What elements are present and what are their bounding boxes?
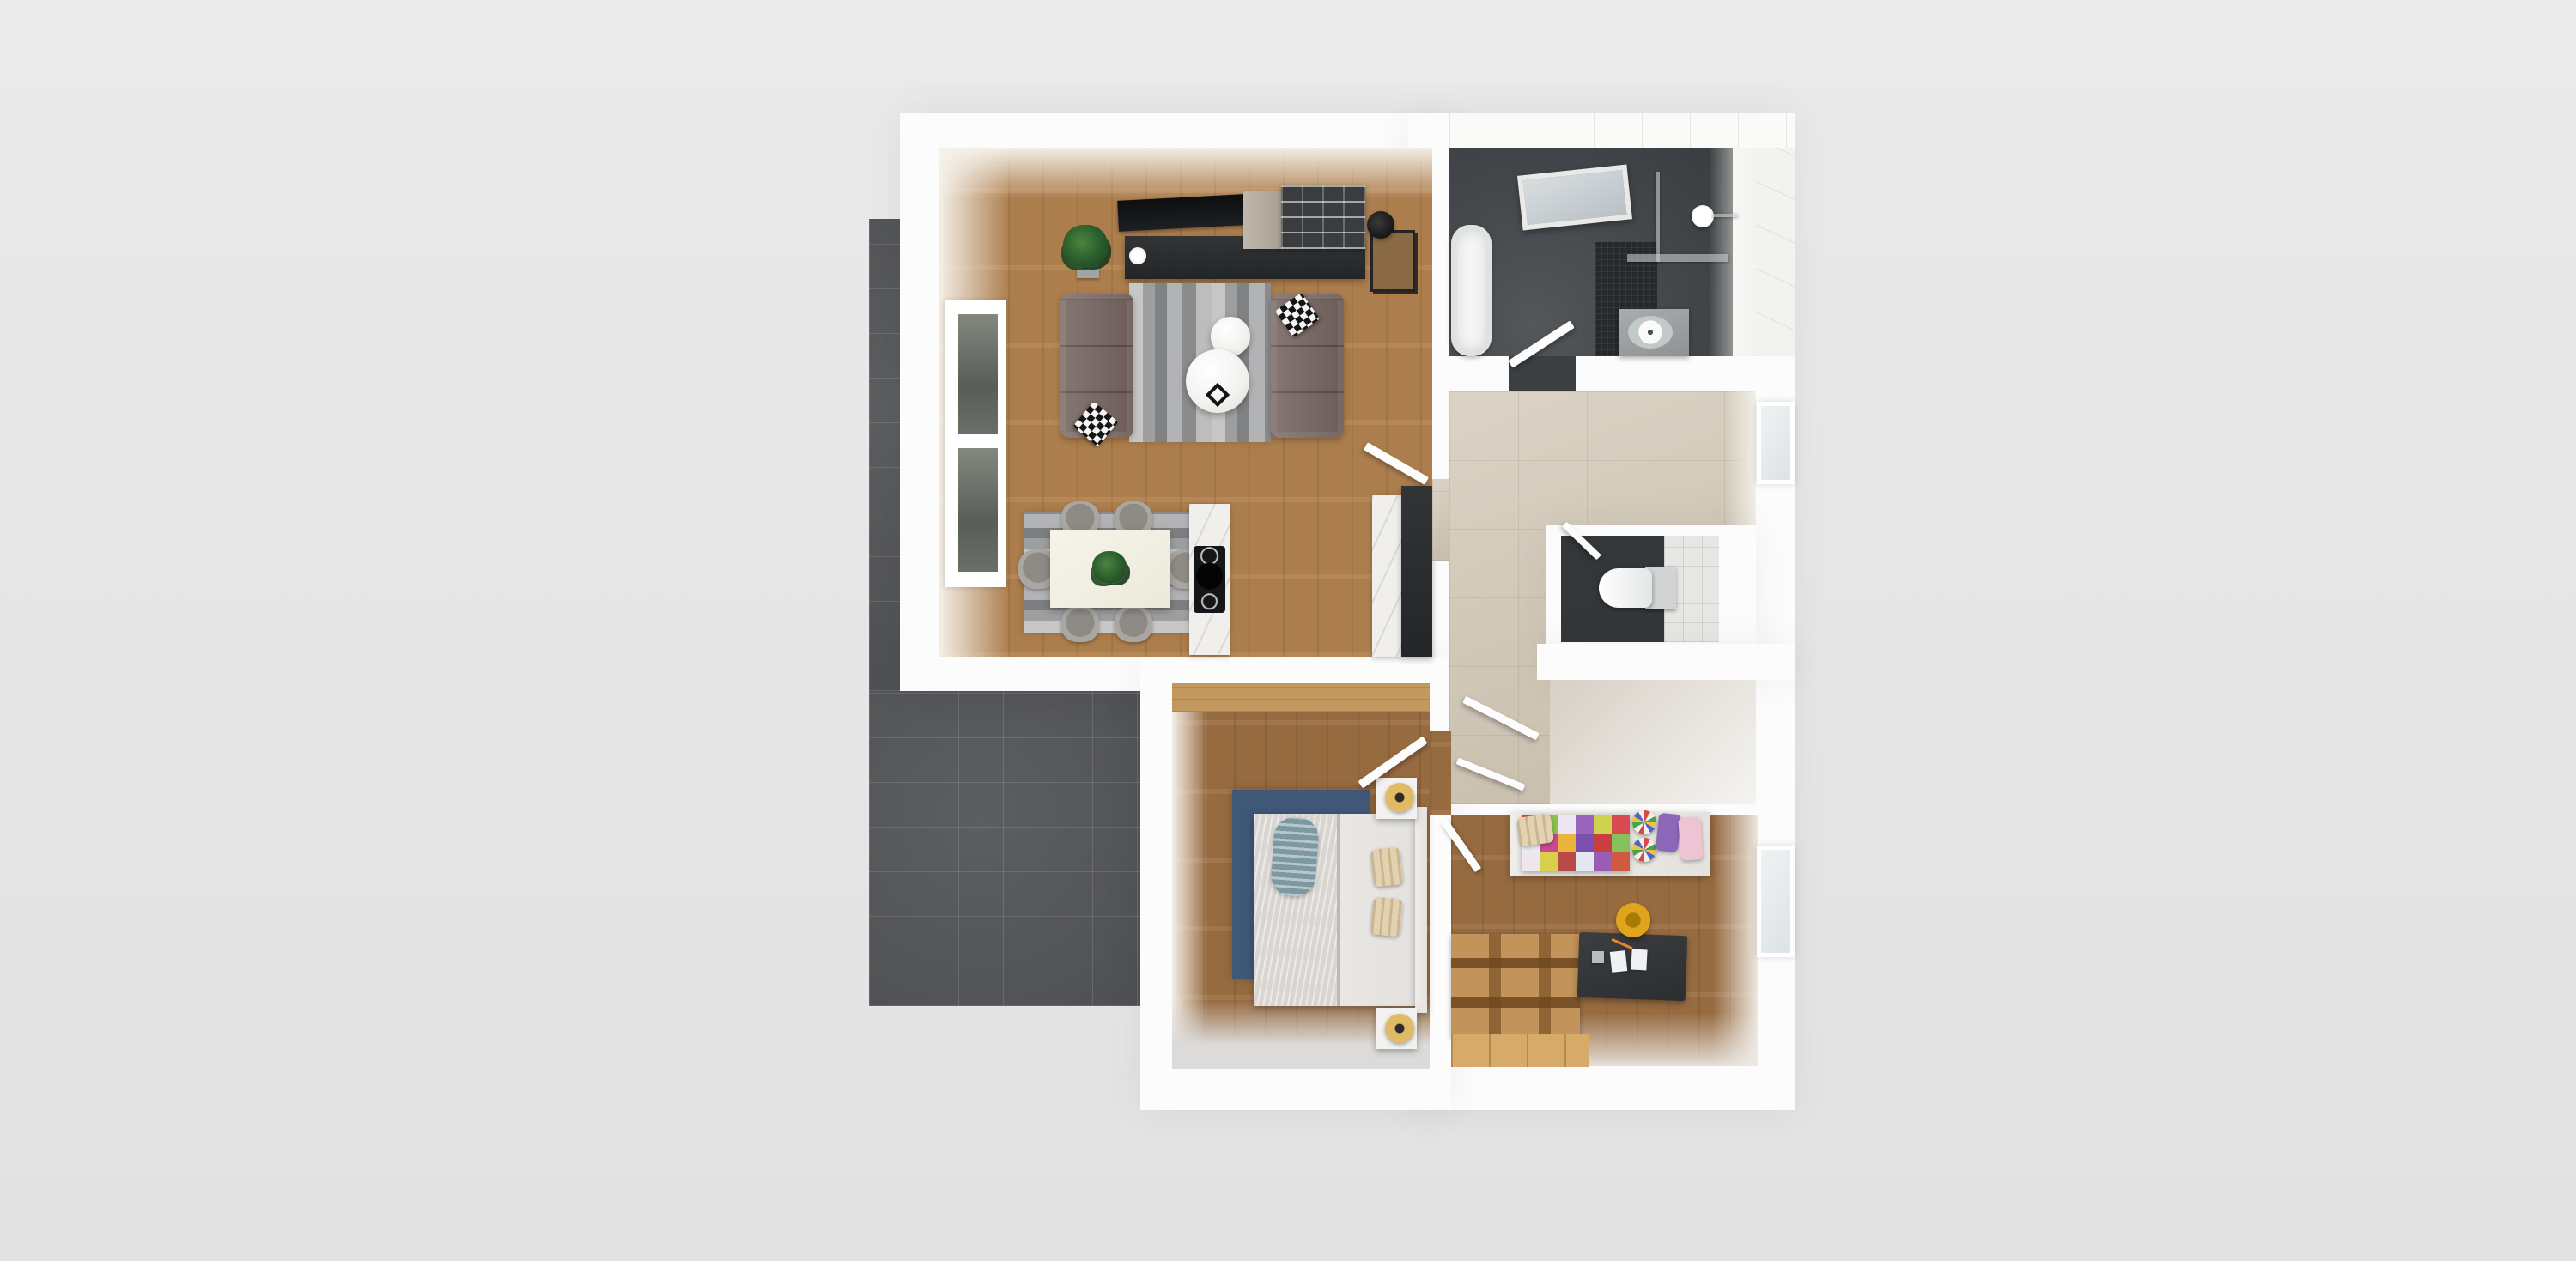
kids-chair <box>1616 903 1650 937</box>
bed-pillow-2 <box>1370 897 1403 937</box>
quilt-cell <box>1594 834 1612 852</box>
bedroom-doorway-opening <box>1430 731 1451 815</box>
desk-paper-1 <box>1610 950 1627 973</box>
bed-headboard <box>1415 807 1427 1013</box>
kids-pillow-pink <box>1678 816 1703 861</box>
living-plant <box>1063 225 1108 268</box>
quilt-cell <box>1558 852 1576 871</box>
quilt-cell <box>1612 834 1630 852</box>
dining-centerpiece-plant <box>1092 551 1127 584</box>
kitchen-hob <box>1194 546 1225 613</box>
terrace-strip <box>869 219 903 691</box>
shower-glass-vertical <box>1656 172 1660 262</box>
quilt-cell <box>1540 852 1558 871</box>
kitchen-cabinets-dark <box>1401 486 1432 657</box>
living-window-pane-lower <box>958 448 998 572</box>
quilt-cell <box>1576 852 1594 871</box>
hallway-window-east <box>1757 402 1795 484</box>
shower-arm <box>1712 214 1738 217</box>
kids-lollipop-2 <box>1632 838 1656 862</box>
shelf-unit <box>1281 185 1365 249</box>
desk-paper-2 <box>1631 949 1647 971</box>
quilt-cell <box>1594 815 1612 834</box>
quilt-cell <box>1576 834 1594 852</box>
quilt-cell <box>1558 834 1576 852</box>
quilt-cell <box>1522 852 1540 871</box>
terrace-main <box>869 691 1140 1006</box>
bathroom-tile-band-top <box>1449 113 1795 148</box>
bathroom-skylight <box>1517 164 1632 230</box>
quilt-cell <box>1612 852 1630 871</box>
bathroom-wallface-right <box>1709 148 1756 356</box>
bathtub <box>1451 225 1492 356</box>
side-table <box>1370 230 1415 292</box>
kids-platform <box>1451 934 1580 1037</box>
nightstand-lamp-top <box>1385 783 1414 812</box>
storage-floor <box>1550 680 1756 804</box>
bed-throw <box>1270 815 1320 897</box>
quilt-cell <box>1594 852 1612 871</box>
kids-pillow-beige <box>1516 813 1554 846</box>
quilt-cell <box>1576 815 1594 834</box>
cabinet-beige <box>1243 191 1281 249</box>
shower-head <box>1692 205 1714 227</box>
bedroom-wardrobe <box>1172 683 1430 712</box>
kitchen-counter-marble <box>1372 495 1401 657</box>
toilet-bowl <box>1599 568 1652 608</box>
hallway-wallface-right <box>1726 391 1756 525</box>
kids-window-east <box>1757 846 1795 957</box>
quilt-cell <box>1612 815 1630 834</box>
floor-plan-render <box>0 0 2576 1261</box>
kids-lollipop-1 <box>1632 810 1656 834</box>
bed-pillow-1 <box>1370 846 1403 887</box>
living-window-pane-upper <box>958 314 998 434</box>
quilt-cell <box>1558 815 1576 834</box>
kids-platform-front <box>1451 1034 1589 1067</box>
kitchen-doorway-opening <box>1432 479 1451 561</box>
bathroom-tile-band-right <box>1756 148 1795 356</box>
desk-cube <box>1592 951 1604 963</box>
console-cup <box>1129 247 1146 264</box>
shower-glass-shelf <box>1627 254 1728 262</box>
dining-chair-bottom-2 <box>1115 606 1152 642</box>
storage-wall-top <box>1537 644 1795 680</box>
dining-chair-bottom-1 <box>1061 606 1099 642</box>
kids-pillow-purple <box>1656 813 1681 852</box>
bathroom-sink <box>1628 316 1673 349</box>
floor-lamp <box>1367 211 1394 239</box>
nightstand-lamp-bottom <box>1385 1014 1414 1043</box>
